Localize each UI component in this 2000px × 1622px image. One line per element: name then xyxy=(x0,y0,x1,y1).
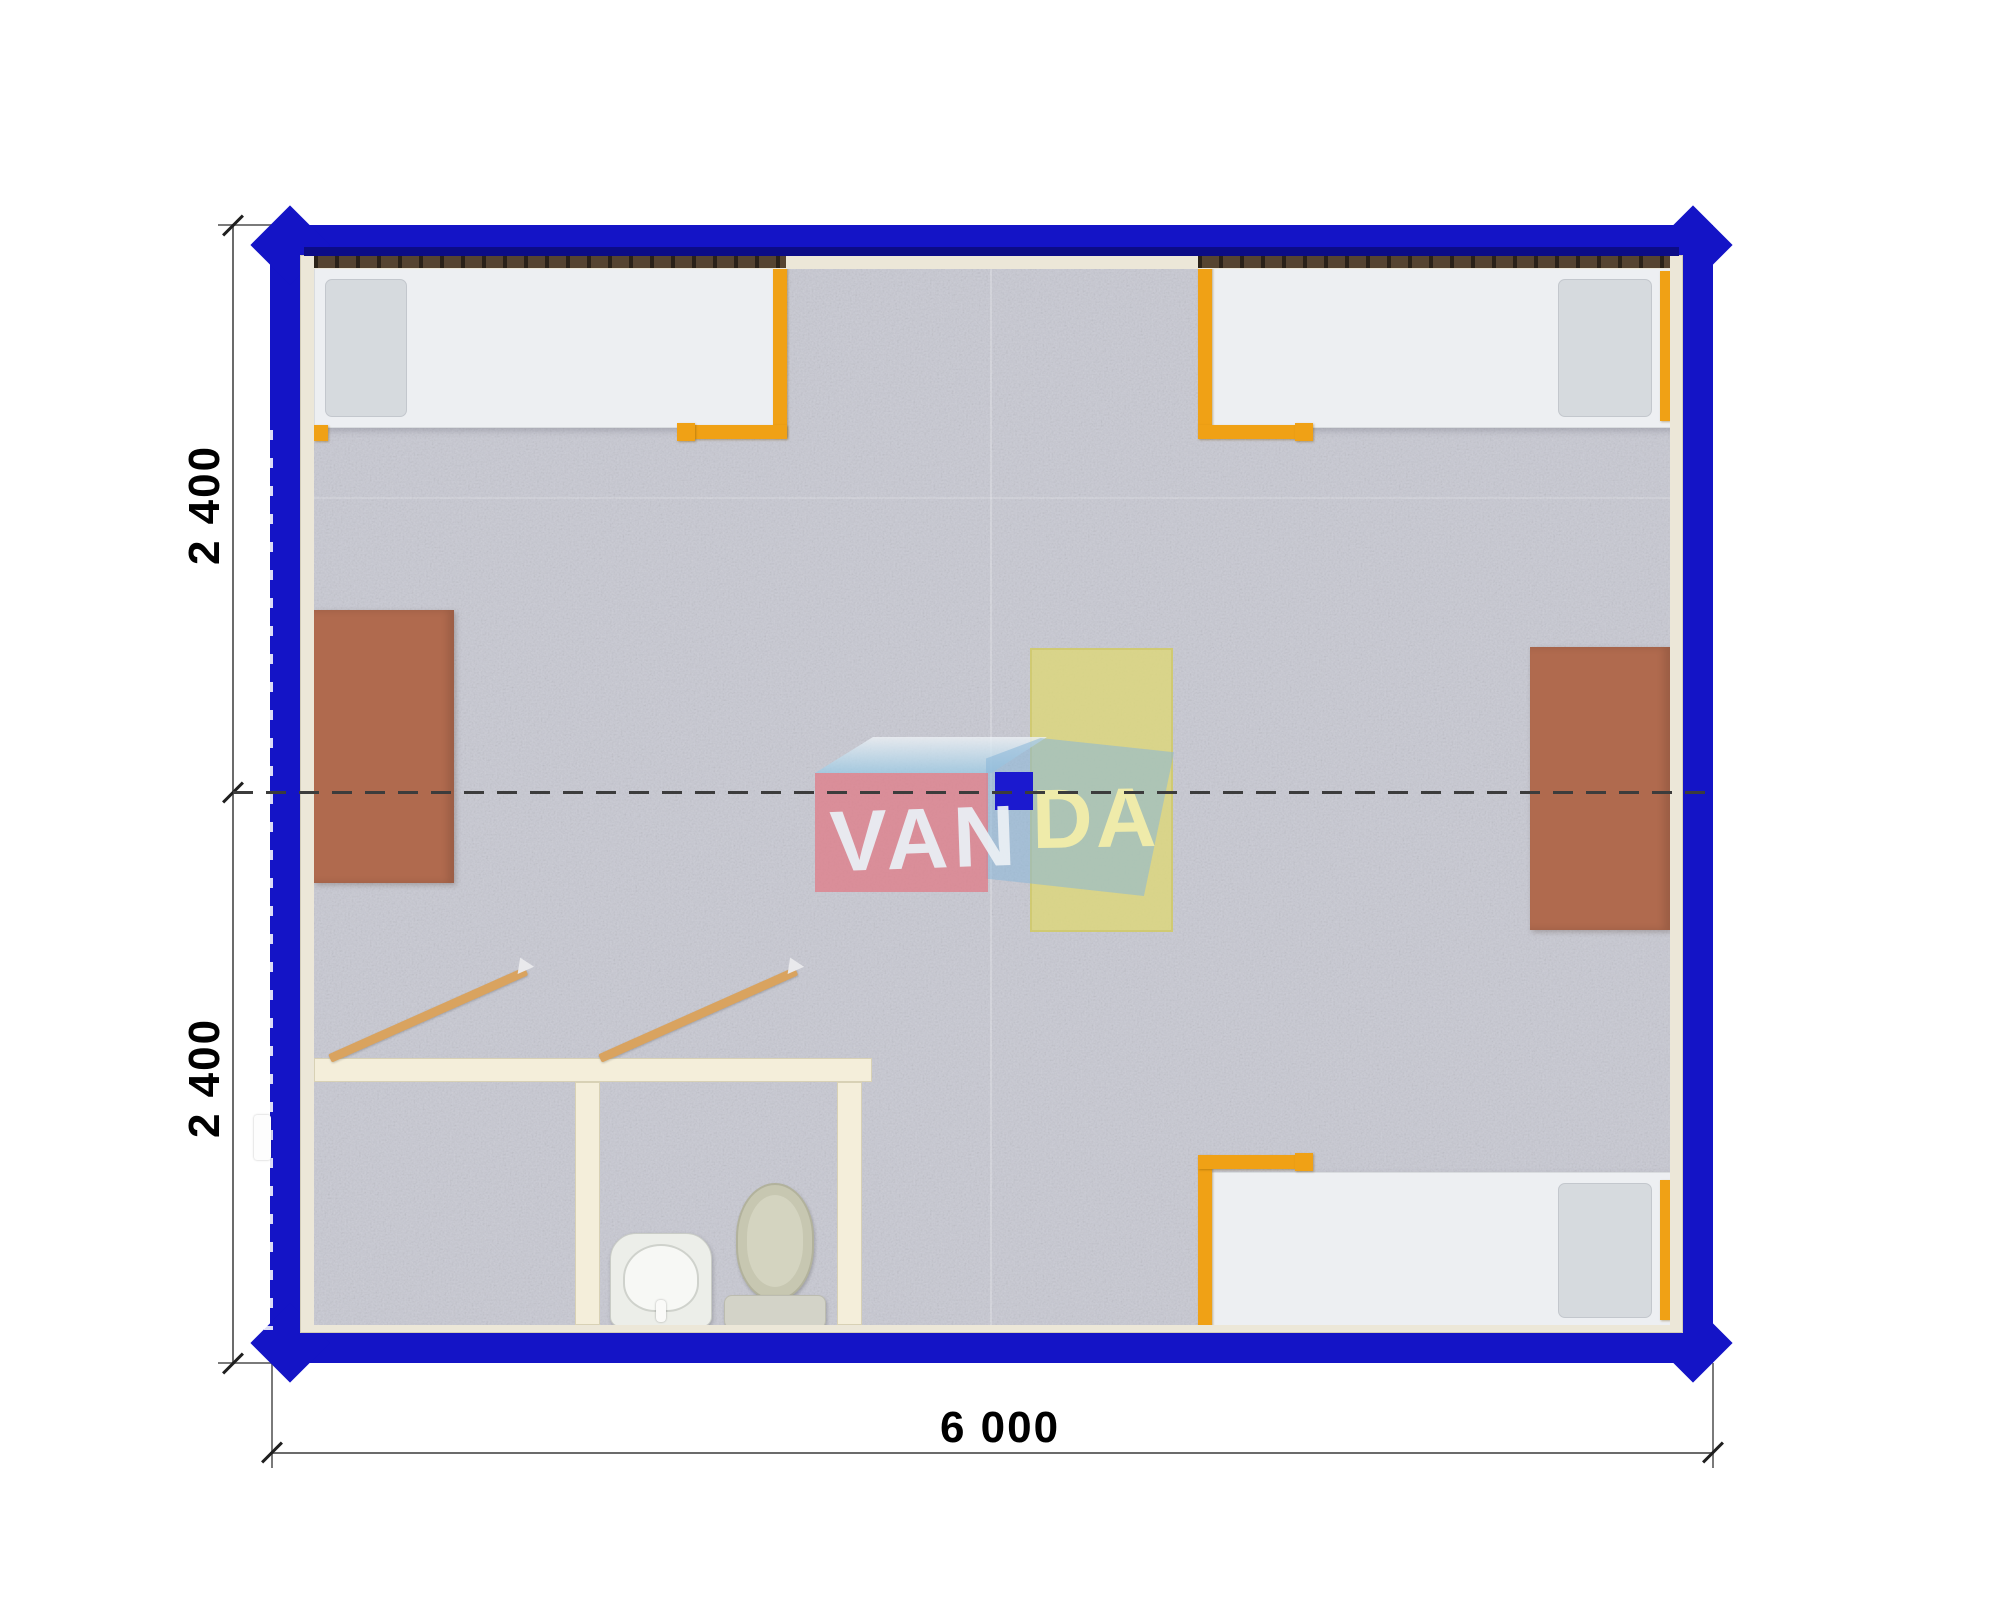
center-axis-line xyxy=(233,791,1713,794)
window-strip-left xyxy=(314,256,786,268)
floor-seam xyxy=(990,269,992,1325)
bed-rail-orange xyxy=(682,425,787,439)
pillow xyxy=(1558,279,1652,417)
left-wall-panel-dashes xyxy=(264,430,273,1330)
bed-rail-orange xyxy=(1295,423,1313,441)
bed-top-left xyxy=(314,269,775,428)
bed-rail-orange xyxy=(1198,1155,1212,1325)
dimension-label-width: 6 000 xyxy=(940,1403,1060,1453)
bed-rail-orange xyxy=(1198,1155,1303,1169)
bathroom-wall-divider xyxy=(575,1082,600,1325)
floor-plan-canvas: 2 400 2 400 6 000 xyxy=(0,0,2000,1622)
top-wall-shadow xyxy=(304,247,1679,256)
pillow xyxy=(325,279,407,417)
desk-left-wall xyxy=(314,610,454,883)
bed-rail-orange xyxy=(677,423,695,441)
toilet-tank xyxy=(724,1295,826,1325)
highlighted-table xyxy=(1030,648,1173,932)
bed-rail-orange xyxy=(1198,425,1303,439)
bed-top-right xyxy=(1211,269,1670,428)
washbasin-tap xyxy=(656,1300,666,1322)
desk-right-wall xyxy=(1530,647,1670,930)
floor-area xyxy=(314,269,1670,1325)
bathroom-wall-right xyxy=(837,1082,862,1325)
dimension-label-height-top: 2 400 xyxy=(180,445,230,565)
bathroom-wall-horizontal xyxy=(314,1058,872,1082)
washbasin xyxy=(610,1233,712,1325)
bed-rail-orange xyxy=(1660,271,1670,421)
bed-rail-orange xyxy=(1295,1153,1313,1171)
dimension-label-height-bottom: 2 400 xyxy=(180,1018,230,1138)
bed-rail-orange xyxy=(1660,1180,1670,1320)
bed-bottom-right xyxy=(1211,1172,1670,1325)
bed-rail-orange xyxy=(773,269,787,437)
toilet xyxy=(736,1183,814,1301)
window-strip-right xyxy=(1198,256,1670,268)
side-entry-marker xyxy=(254,1115,271,1160)
toilet-seat xyxy=(747,1195,803,1287)
pillow xyxy=(1558,1183,1652,1318)
bed-rail-orange xyxy=(314,425,328,441)
cabin-outline xyxy=(270,225,1713,1363)
floor-seam xyxy=(314,497,1670,499)
bed-rail-orange xyxy=(1198,269,1212,437)
